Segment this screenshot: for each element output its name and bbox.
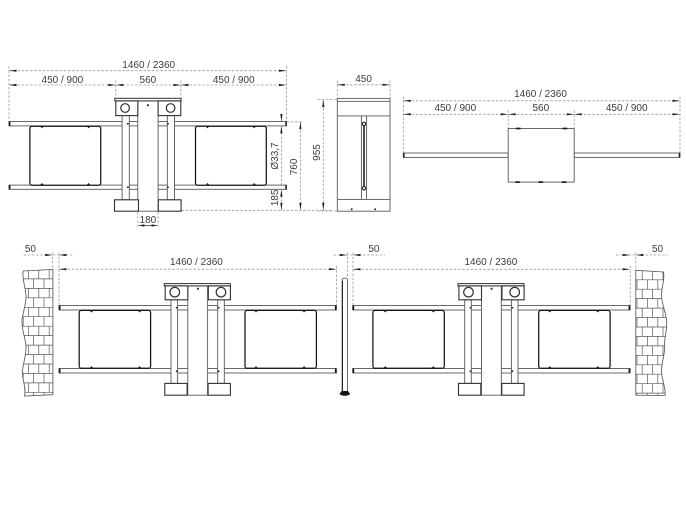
svg-text:450 / 900: 450 / 900 — [434, 103, 476, 114]
svg-text:1460 / 2360: 1460 / 2360 — [122, 60, 175, 71]
svg-text:Ø33,7: Ø33,7 — [270, 142, 281, 170]
svg-text:1460 / 2360: 1460 / 2360 — [514, 89, 567, 100]
svg-text:760: 760 — [289, 158, 300, 175]
svg-text:450 / 900: 450 / 900 — [42, 75, 84, 86]
svg-text:180: 180 — [140, 215, 157, 226]
svg-text:1460 / 2360: 1460 / 2360 — [464, 257, 517, 268]
svg-text:50: 50 — [25, 244, 37, 255]
svg-text:1460 / 2360: 1460 / 2360 — [170, 257, 223, 268]
svg-text:50: 50 — [652, 244, 664, 255]
svg-text:185: 185 — [270, 189, 281, 206]
svg-text:560: 560 — [532, 103, 549, 114]
svg-text:560: 560 — [140, 75, 157, 86]
svg-text:450 / 900: 450 / 900 — [213, 75, 255, 86]
svg-text:50: 50 — [368, 244, 380, 255]
svg-text:450: 450 — [355, 74, 372, 85]
svg-text:450 / 900: 450 / 900 — [606, 103, 648, 114]
svg-text:955: 955 — [312, 144, 323, 161]
